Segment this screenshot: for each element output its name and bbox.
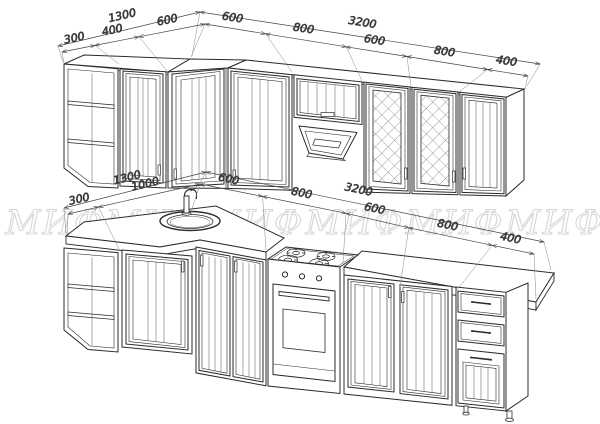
upper-overall-right-label: 3200 (348, 14, 378, 31)
door-handle (463, 168, 466, 179)
wall-cabinet-lattice-800 (412, 87, 458, 195)
door-handle (453, 171, 456, 182)
upper-dim-label: 600 (221, 9, 244, 25)
cabinet-side-panel (506, 89, 524, 196)
cabinet-leg (506, 411, 514, 421)
upper-overall-left-label: 1300 (107, 6, 137, 25)
base-cabinet-open-corner-shelf (64, 248, 118, 352)
hood-cabinet (294, 75, 362, 161)
base-cabinet-drawers (456, 283, 528, 421)
sink-cabinet-left-door (122, 250, 192, 354)
wall-cabinet-door-400-right (460, 89, 524, 196)
door-handle (182, 261, 185, 272)
upper-dim-label: 600 (363, 32, 386, 48)
kitchen-technical-drawing: МИФ МИФ МИФ МИФ МИФ МИФ (0, 0, 600, 424)
wall-cabinet-lattice-600 (364, 82, 410, 193)
door-handle (402, 292, 405, 303)
flip-door-handle (321, 113, 334, 117)
door-handle (235, 261, 238, 272)
oven-front (268, 259, 340, 394)
range-hood (299, 126, 357, 161)
cabinet-leg (463, 406, 469, 415)
wall-cabinet-open-corner-shelf (64, 64, 118, 188)
upper-dim-label: 400 (101, 22, 124, 39)
door-handle (158, 165, 161, 175)
door-handle (201, 255, 204, 266)
lower-dim-label: 800 (290, 185, 313, 202)
cabinet-door (400, 285, 448, 399)
door-handle (405, 168, 408, 179)
sink-cabinet-front-doors (192, 247, 266, 386)
kitchen-drawing-page: МИФ МИФ МИФ МИФ МИФ МИФ (0, 0, 600, 424)
upper-dim-label: 800 (433, 43, 456, 59)
door-handle (389, 287, 392, 298)
wall-cabinet-door-600 (228, 68, 292, 190)
lattice-glass (373, 90, 401, 184)
upper-dim-label: 800 (292, 20, 315, 36)
cabinet-side-panel (506, 283, 528, 411)
upper-dim-label: 300 (63, 30, 86, 47)
upper-dim-label: 600 (156, 12, 179, 29)
base-cabinet-two-doors (344, 275, 452, 405)
upper-dim-label: 400 (495, 53, 518, 69)
lattice-glass (421, 95, 449, 186)
door-handle (174, 169, 177, 179)
